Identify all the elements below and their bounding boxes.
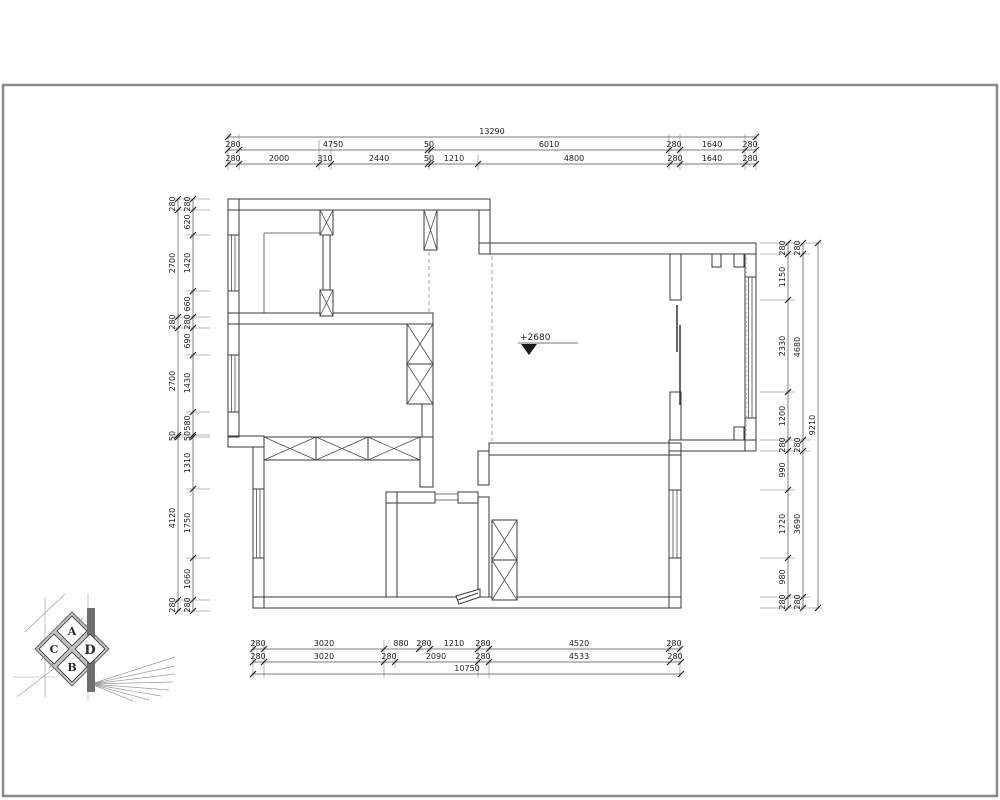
logo-letter-d: D bbox=[84, 643, 95, 658]
dim-label: 280 bbox=[778, 437, 787, 452]
dimensions-bottom: 280 3020 880 280 1210 280 4520 280 280 3… bbox=[250, 639, 682, 673]
dim-label: 2000 bbox=[269, 154, 289, 163]
dim-label: 280 bbox=[666, 140, 681, 149]
dim-label: 280 bbox=[793, 240, 802, 255]
logo-letter-c: C bbox=[50, 643, 59, 656]
dim-label: 1640 bbox=[702, 140, 722, 149]
dim-label: 2330 bbox=[778, 336, 787, 356]
dim-label: 1420 bbox=[183, 253, 192, 273]
dim-label: 50 bbox=[183, 431, 192, 441]
dim-label: 280 bbox=[416, 639, 431, 648]
dim-label: 4520 bbox=[569, 639, 589, 648]
dim-label: 1310 bbox=[183, 453, 192, 473]
dim-label: 980 bbox=[778, 569, 787, 584]
dim-label: 1210 bbox=[444, 154, 464, 163]
dim-label: 990 bbox=[778, 462, 787, 477]
dim-label: 280 bbox=[475, 639, 490, 648]
opening-dashed-lines bbox=[429, 252, 747, 441]
dim-label: 2700 bbox=[168, 253, 177, 273]
dim-label: 280 bbox=[250, 652, 265, 661]
level-marker: +2680 bbox=[518, 333, 578, 355]
dim-label: 50 bbox=[168, 431, 177, 441]
dim-label: 310 bbox=[317, 154, 332, 163]
dim-label: 280 bbox=[667, 154, 682, 163]
dim-label: 3020 bbox=[314, 652, 334, 661]
dim-label: 2700 bbox=[168, 371, 177, 391]
dim-label: 4750 bbox=[323, 140, 343, 149]
dim-label: 280 bbox=[225, 140, 240, 149]
dim-label: 280 bbox=[667, 652, 682, 661]
dim-label: 1430 bbox=[183, 373, 192, 393]
dim-label: 13290 bbox=[479, 127, 504, 136]
dim-label: 3020 bbox=[314, 639, 334, 648]
dim-label: 9210 bbox=[808, 415, 817, 435]
dim-label: 50 bbox=[424, 140, 434, 149]
dim-label: 1150 bbox=[778, 267, 787, 287]
sheet-frame bbox=[3, 85, 997, 796]
dim-label: 580 bbox=[183, 415, 192, 430]
dim-label: 4533 bbox=[569, 652, 589, 661]
dim-label: 4800 bbox=[564, 154, 584, 163]
sliding-door-leaves bbox=[677, 305, 680, 405]
window bbox=[253, 489, 264, 558]
floor-plan: +2680 bbox=[228, 199, 756, 608]
dim-label: 280 bbox=[742, 140, 757, 149]
dim-label: 660 bbox=[183, 296, 192, 311]
dim-label: 620 bbox=[183, 214, 192, 229]
closet-lines bbox=[264, 233, 320, 313]
window bbox=[228, 355, 239, 412]
dim-label: 280 bbox=[778, 594, 787, 609]
window bbox=[228, 235, 239, 291]
dim-label: 280 bbox=[168, 314, 177, 329]
dim-label: 4680 bbox=[793, 337, 802, 357]
dimensions-top: 13290 280 4750 50 6010 280 1640 280 280 … bbox=[225, 127, 757, 163]
floor-plan-drawing: +2680 13290 280 4750 50 6010 280 1640 28… bbox=[0, 0, 1000, 800]
dim-label: 280 bbox=[475, 652, 490, 661]
dim-label: 880 bbox=[393, 639, 408, 648]
dim-label: 6010 bbox=[539, 140, 559, 149]
level-triangle-icon bbox=[521, 344, 537, 355]
dim-label: 280 bbox=[168, 597, 177, 612]
dim-label: 1060 bbox=[183, 569, 192, 589]
company-logo: A C D B bbox=[13, 594, 175, 701]
logo-shadow-fan bbox=[91, 657, 175, 701]
dim-label: 1750 bbox=[183, 513, 192, 533]
dim-label: 3690 bbox=[793, 514, 802, 534]
dim-label: 1200 bbox=[778, 406, 787, 426]
dim-label: 4120 bbox=[168, 508, 177, 528]
dim-label: 1210 bbox=[444, 639, 464, 648]
cad-canvas: +2680 13290 280 4750 50 6010 280 1640 28… bbox=[0, 0, 1000, 800]
dim-label: 1640 bbox=[702, 154, 722, 163]
dim-label: 2090 bbox=[426, 652, 446, 661]
logo-letter-b: B bbox=[67, 661, 76, 674]
dim-label: 10750 bbox=[454, 664, 479, 673]
dim-label: 280 bbox=[183, 196, 192, 211]
window bbox=[669, 490, 681, 558]
door-threshold-lines bbox=[435, 494, 458, 500]
dim-label: 280 bbox=[183, 597, 192, 612]
dim-label: 50 bbox=[424, 154, 434, 163]
dim-label: 280 bbox=[225, 154, 240, 163]
level-label: +2680 bbox=[520, 333, 551, 343]
dim-label: 690 bbox=[183, 333, 192, 348]
dim-label: 280 bbox=[381, 652, 396, 661]
dim-label: 280 bbox=[168, 196, 177, 211]
logo-letter-a: A bbox=[67, 625, 77, 638]
dim-label: 280 bbox=[793, 594, 802, 609]
dim-label: 280 bbox=[666, 639, 681, 648]
dim-label: 280 bbox=[793, 437, 802, 452]
dimensions-right: 280 1150 2330 1200 280 990 1720 980 280 … bbox=[778, 240, 817, 609]
dim-label: 280 bbox=[183, 314, 192, 329]
window bbox=[745, 277, 756, 418]
dim-label: 280 bbox=[742, 154, 757, 163]
dimensions-left: 280 2700 280 2700 50 4120 280 280 620 14… bbox=[168, 196, 192, 612]
dim-label: 1720 bbox=[778, 514, 787, 534]
dim-label: 280 bbox=[778, 240, 787, 255]
dim-label: 280 bbox=[250, 639, 265, 648]
dim-label: 2440 bbox=[369, 154, 389, 163]
